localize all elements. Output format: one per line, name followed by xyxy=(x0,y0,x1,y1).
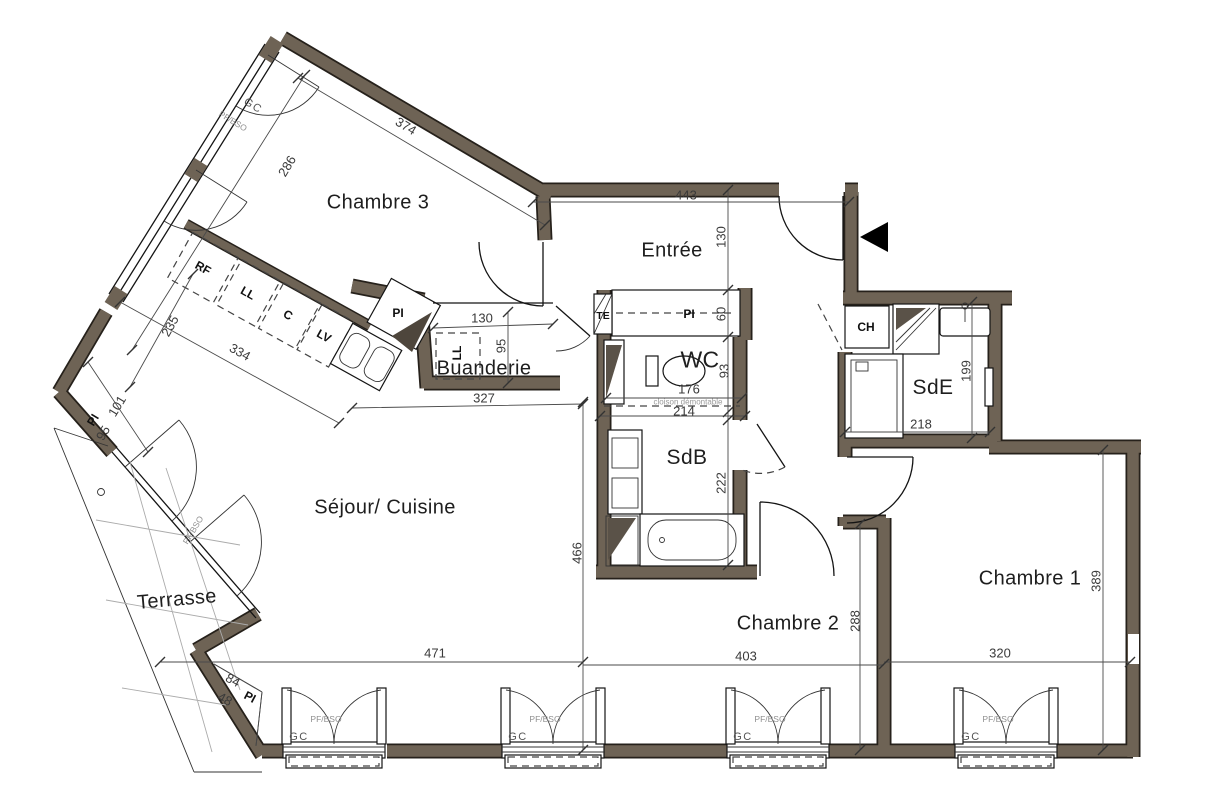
door-chambre1 xyxy=(847,457,913,523)
dim-443: 443 xyxy=(675,188,697,203)
room-label-sejour: Séjour/ Cuisine xyxy=(314,497,456,520)
dim-199: 199 xyxy=(959,360,974,382)
guardrail-label-w4: GC xyxy=(961,731,981,743)
dim-403: 403 xyxy=(735,649,757,664)
room-label-entree: Entrée xyxy=(641,240,702,263)
floor-plan-drawing xyxy=(0,0,1209,800)
dim-466: 466 xyxy=(570,542,585,564)
terrace-door-swings xyxy=(125,420,261,596)
room-label-buanderie: Buanderie xyxy=(437,358,532,381)
shower-tray xyxy=(845,354,903,438)
door-buanderie xyxy=(556,336,590,351)
door-chambre2 xyxy=(760,502,834,576)
dim-60: 60 xyxy=(714,307,729,321)
window-w1 xyxy=(282,688,386,768)
window-w2 xyxy=(501,688,605,768)
window-w4 xyxy=(954,688,1058,768)
room-label-wc: WC xyxy=(680,347,719,374)
door-chambre3 xyxy=(479,242,543,306)
fixture-label-pi-kitchen: PI xyxy=(392,306,403,320)
dim-320: 320 xyxy=(989,646,1011,661)
door-sde xyxy=(818,304,842,350)
dim-176: 176 xyxy=(678,382,700,397)
dim-389: 389 xyxy=(1089,570,1104,592)
guardrail-label-w1: GC xyxy=(289,731,309,743)
fixture-label-te: TE xyxy=(596,310,609,322)
window-label-w3: PF/BSO xyxy=(754,714,785,724)
walls xyxy=(59,38,1141,757)
dim-218: 218 xyxy=(910,417,932,432)
room-label-sdb: SdB xyxy=(667,446,708,470)
double-washbasin xyxy=(608,430,642,514)
dim-95-buanderie: 95 xyxy=(494,339,509,353)
fixture-label-pi-hall: PI xyxy=(683,307,694,321)
dim-222: 222 xyxy=(714,472,729,494)
fixture-label-ch: CH xyxy=(857,320,874,334)
window-label-w2: PF/BSO xyxy=(529,714,560,724)
floor-plan: Chambre 3 Entrée Buanderie WC SdB SdE Sé… xyxy=(0,0,1209,800)
room-label-chambre2: Chambre 2 xyxy=(737,613,840,636)
window-label-w1: PF/BSO xyxy=(310,714,341,724)
window-label-w4: PF/BSO xyxy=(982,714,1013,724)
room-label-chambre3: Chambre 3 xyxy=(327,192,430,215)
dim-93: 93 xyxy=(717,364,732,378)
guardrail-label-w2: GC xyxy=(508,731,528,743)
entry-door xyxy=(779,196,888,260)
guardrail-label-w3: GC xyxy=(733,731,753,743)
room-label-chambre1: Chambre 1 xyxy=(979,568,1082,591)
annotation-cloison-demontable: cloison démontable xyxy=(654,398,723,407)
dim-471: 471 xyxy=(424,646,446,661)
dim-288: 288 xyxy=(848,610,863,632)
dim-327: 327 xyxy=(473,391,495,406)
window-w3 xyxy=(726,688,830,768)
right-wall-notch xyxy=(1128,634,1139,664)
door-sdb xyxy=(757,424,785,467)
fixture-label-ll-buanderie: LL xyxy=(450,346,464,361)
entrance-arrow-icon xyxy=(860,222,888,252)
dim-130-buanderie: 130 xyxy=(471,311,493,326)
dim-130-entree: 130 xyxy=(714,226,729,248)
room-label-sde: SdE xyxy=(913,376,954,400)
